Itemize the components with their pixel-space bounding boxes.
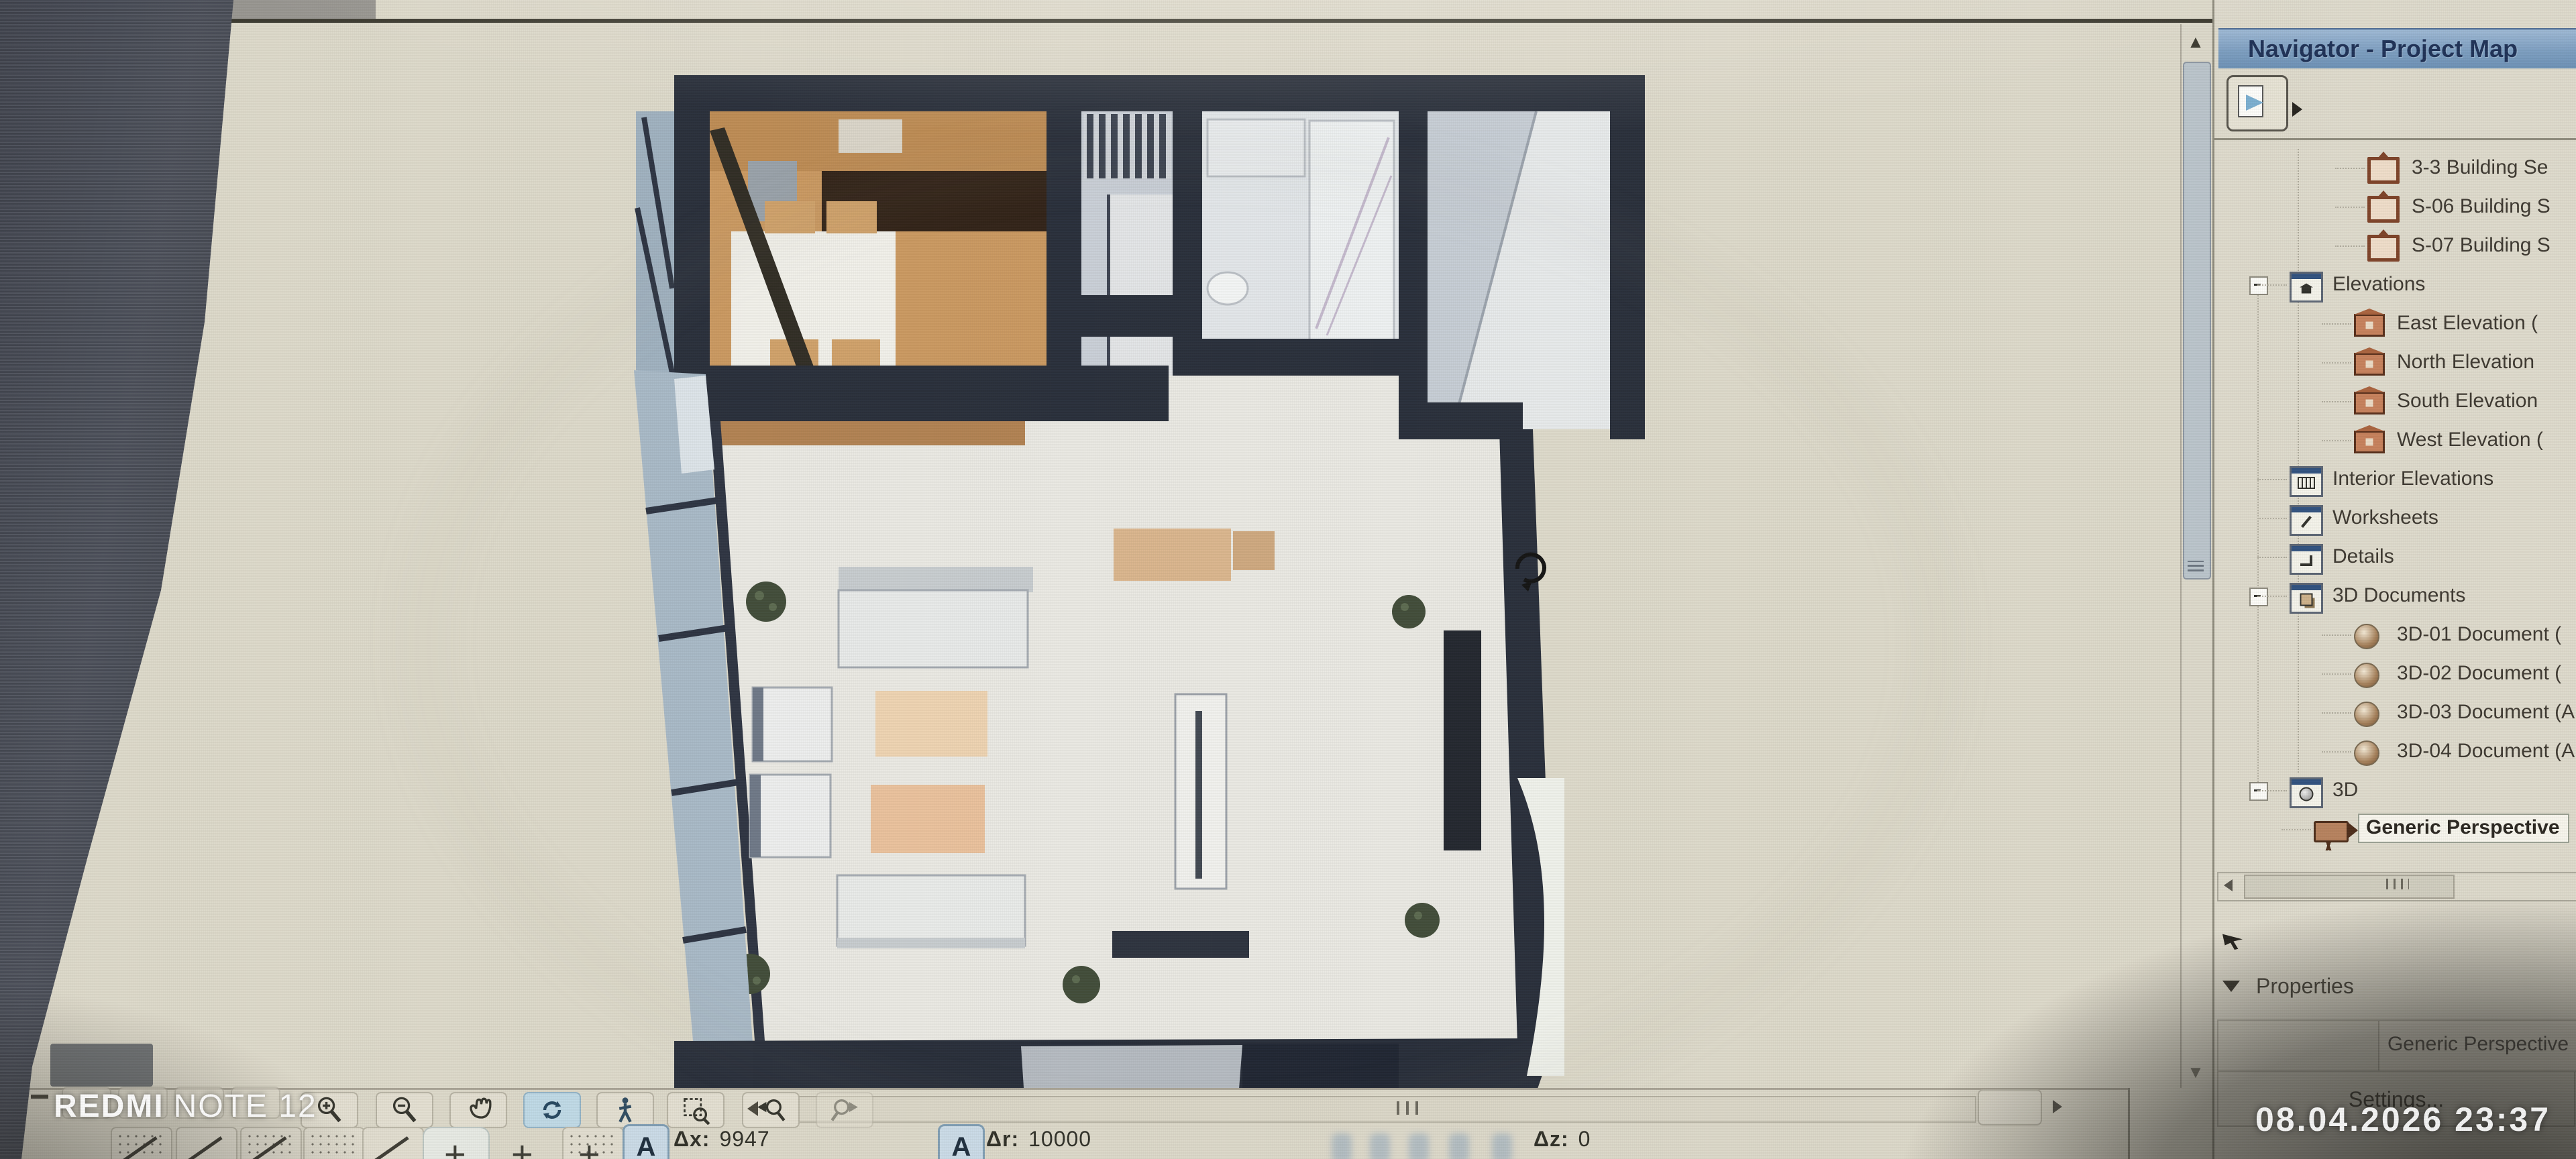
tree-item-3d-01-document[interactable]: 3D-01 Document ( [2214,616,2576,655]
elevfolder-icon [2290,272,2323,302]
properties-value-cell: Generic Perspective [2378,1019,2576,1072]
orbit-button[interactable] [523,1092,581,1128]
tree-guide-stub [2322,323,2351,325]
tree-item-label: S-06 Building S [2412,195,2551,218]
vscrollbar-thumb[interactable] [2183,62,2211,579]
statusbar-icon-5[interactable] [362,1127,424,1159]
living-room [710,376,1536,1041]
hscrollbar-track[interactable] [766,1096,1976,1123]
properties-label: Properties [2256,974,2354,999]
tree-item-label: North Elevation [2397,351,2534,374]
mouse-pointer-artifact [2222,932,2243,950]
tree-item-label: Worksheets [2332,506,2438,529]
tree-hscroll-thumb[interactable] [2244,875,2455,899]
dark-ui-block [50,1044,153,1087]
tree-collapse-box[interactable] [2249,782,2268,801]
dr-label: Δr: [986,1127,1019,1151]
hscrollbar-left-arrow[interactable] [747,1101,758,1116]
tree-hscrollbar[interactable] [2217,872,2576,901]
tree-item-label: 3D-03 Document (A [2397,701,2575,724]
hscrollbar-right-button[interactable] [1978,1089,2042,1125]
tree-item-label: Elevations [2332,273,2425,296]
datetime-watermark: 08.04.2026 23:37 [2255,1100,2551,1139]
tree-hscroll-left-arrow[interactable] [2224,879,2233,891]
interior-icon [2290,466,2323,497]
tree-item-label: Interior Elevations [2332,467,2493,490]
doc3d-icon [2354,740,2379,766]
tree-item-label: S-07 Building S [2412,234,2551,257]
statusbar-separator [2128,1088,2130,1159]
statusbar-icon-2[interactable] [176,1127,237,1159]
tree-item-3-3-building-se[interactable]: 3-3 Building Se [2214,149,2576,188]
elev-icon [2354,431,2385,453]
tree-hscroll-grip [2386,879,2409,889]
bathroom [1202,111,1399,376]
tree-guide-stub [2322,401,2351,402]
previous-view-icon [756,1095,786,1125]
collapse-triangle-icon [2222,981,2240,992]
tree-item-label: Details [2332,545,2394,568]
cutoff-icon-artifact [1370,1134,1390,1159]
tracker-r-button[interactable]: A [938,1124,985,1159]
tree-item-label: East Elevation ( [2397,312,2538,335]
tree-guide-stub [2322,712,2351,714]
tree-guide-stub [2282,829,2311,830]
tree-guide-stub [2322,362,2351,364]
tree-guide-stub [2257,790,2287,791]
zoom-out-icon [390,1095,419,1125]
tree-guide-stub [2335,245,2365,247]
next-view-icon [830,1095,859,1125]
phone-watermark: REDMINOTE 12 [54,1088,317,1125]
orbit-icon [537,1095,567,1125]
properties-key-cell [2217,1019,2381,1072]
kitchen-room [710,111,1046,376]
tree-guide-stub [2335,207,2365,208]
cutoff-icon-artifact [1492,1134,1512,1159]
next-view-button[interactable] [816,1092,873,1128]
hscrollbar-right-arrow[interactable] [2053,1100,2062,1113]
tree-item-east-elevation[interactable]: East Elevation ( [2214,305,2576,343]
explore-button[interactable] [596,1092,654,1128]
tree-item-label: West Elevation ( [2397,429,2543,451]
tree-item-south-elevation[interactable]: South Elevation [2214,382,2576,421]
properties-header[interactable]: Properties [2214,971,2576,1003]
hscrollbar-grip[interactable] [1397,1101,1424,1115]
zoom-in-icon [315,1095,344,1125]
elev-icon [2354,314,2385,337]
statusbar-icon-1[interactable] [111,1127,172,1159]
cutoff-icon-artifact [1449,1134,1469,1159]
tree-item-label: 3D [2332,779,2358,802]
doc3dfolder-icon [2290,583,2323,614]
phone-watermark-rest: NOTE 12 [174,1089,317,1124]
navigator-title: Navigator - Project Map [2248,35,2518,63]
fit-in-window-button[interactable] [667,1092,724,1128]
dz-label: Δz: [1534,1127,1569,1151]
tree-item-label: 3-3 Building Se [2412,156,2548,179]
tree-item-label: 3D Documents [2332,584,2465,607]
tracker-x-button[interactable]: A [623,1124,669,1159]
monitor-bezel [231,0,376,20]
navigator-panel: Navigator - Project Map 3-3 Building SeS… [2212,0,2576,1159]
tree-item-label: 3D-02 Document ( [2397,662,2561,685]
tree-item-west-elevation[interactable]: West Elevation ( [2214,421,2576,460]
tree-item-3d[interactable]: 3D [2214,771,2576,810]
plus-icon: + [444,1132,466,1159]
dx-label: Δx: [674,1127,710,1151]
dx-value: 9947 [719,1127,769,1151]
panel-separator [2214,138,2576,140]
tree-guide-stub [2257,557,2287,558]
pan-hand-icon [464,1095,493,1125]
doc3d-icon [2354,702,2379,727]
tree-item-3d-documents[interactable]: 3D Documents [2214,577,2576,616]
section-icon [2367,235,2400,262]
screenshot-stage: + + + A Δx:9947 A Δr:10000 Δz:0 ▲ ▼ Navi… [0,0,2576,1159]
tree-guide-stub [2257,596,2287,597]
doc3d-icon [2354,663,2379,688]
navigator-tree: 3-3 Building SeS-06 Building SS-07 Build… [2214,149,2576,850]
tree-guide-stub [2257,518,2287,519]
window-top-border [231,19,2214,23]
blue-arrow-icon [2246,95,2263,111]
elev-icon [2354,353,2385,376]
tree-item-label: 3D-01 Document ( [2397,623,2561,646]
tracker-dr: Δr:10000 [986,1127,1091,1152]
dz-value: 0 [1578,1127,1591,1151]
worksheet-icon [2290,505,2323,536]
cutoff-icon-artifact [1332,1134,1352,1159]
statusbar-icon-3[interactable] [240,1127,302,1159]
elev-icon [2354,392,2385,415]
tree-guide-stub [2322,440,2351,441]
tree-item-worksheets[interactable]: Worksheets [2214,499,2576,538]
camera-icon [2314,821,2349,842]
detail-icon [2290,544,2323,575]
fit-in-window-icon [681,1095,710,1125]
doc3d-icon [2354,624,2379,649]
cutoff-toolbar-mark [31,1095,48,1099]
tracker-dz: Δz:0 [1534,1127,1591,1152]
tracker-dx: Δx:9947 [674,1127,770,1152]
plus-icon-3: + [578,1132,600,1159]
project-chooser-button[interactable] [2226,75,2288,131]
tree-guide-stub [2322,634,2351,636]
tree-item-label: Generic Perspective [2358,814,2569,843]
vscrollbar-up-arrow[interactable]: ▲ [2183,27,2208,56]
tree-item-s-06-building-s[interactable]: S-06 Building S [2214,188,2576,227]
tree-item-north-elevation[interactable]: North Elevation [2214,343,2576,382]
tree-guide-stub [2322,673,2351,675]
dr-value: 10000 [1028,1127,1091,1151]
tree-item-3d-04-document-a[interactable]: 3D-04 Document (A [2214,732,2576,771]
vscrollbar-down-arrow[interactable]: ▼ [2183,1057,2208,1087]
chooser-caret-icon[interactable] [2292,102,2302,117]
zoom-out-button[interactable] [376,1092,433,1128]
statusbar-icon-4[interactable] [303,1127,365,1159]
tree-item-interior-elevations[interactable]: Interior Elevations [2214,460,2576,499]
tree-guide-stub [2322,751,2351,753]
plus-icon-2: + [511,1132,533,1159]
tree-item-3d-03-document-a[interactable]: 3D-03 Document (A [2214,694,2576,732]
folder3d-icon [2290,777,2323,808]
phone-watermark-bold: REDMI [54,1089,164,1124]
tree-item-label: South Elevation [2397,390,2538,412]
tree-collapse-box[interactable] [2249,588,2268,606]
tree-guide-stub [2257,284,2287,286]
vscrollbar-grip [2188,561,2204,571]
section-icon [2367,196,2400,223]
cutoff-icon-artifact [1409,1134,1429,1159]
tree-guide-stub [2257,479,2287,480]
tree-collapse-box[interactable] [2249,276,2268,295]
tree-item-details[interactable]: Details [2214,538,2576,577]
pan-button[interactable] [449,1092,507,1128]
tree-item-3d-02-document[interactable]: 3D-02 Document ( [2214,655,2576,694]
tree-guide-stub [2335,168,2365,169]
section-icon [2367,157,2400,184]
navigator-title-bar[interactable]: Navigator - Project Map [2218,28,2576,68]
tree-item-generic-perspective[interactable]: Generic Perspective [2214,810,2576,849]
tree-item-elevations[interactable]: Elevations [2214,266,2576,305]
side-room [1428,111,1610,429]
tree-item-s-07-building-s[interactable]: S-07 Building S [2214,227,2576,266]
tree-item-label: 3D-04 Document (A [2397,740,2575,763]
walk-person-icon [610,1095,640,1125]
